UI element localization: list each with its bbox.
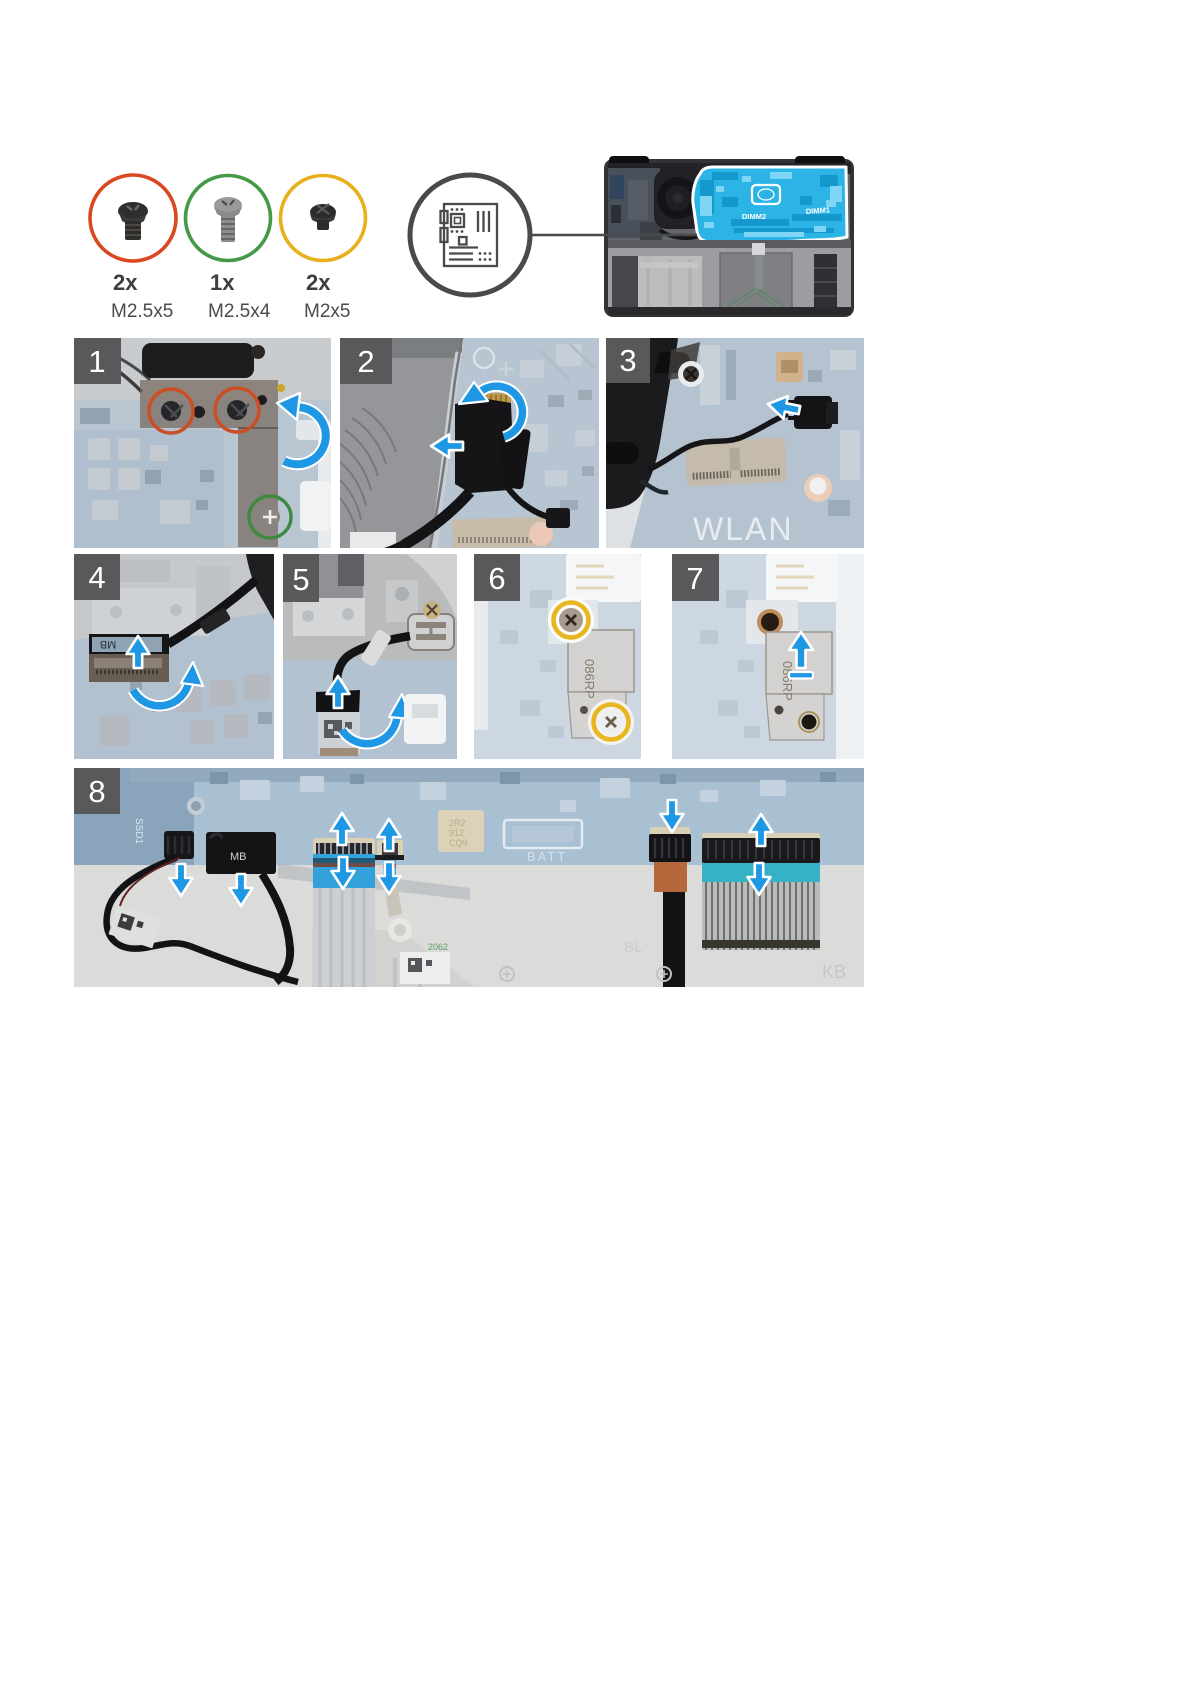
svg-text:7: 7 [686,561,703,596]
svg-text:WLAN: WLAN [693,511,793,547]
svg-text:2R2: 2R2 [449,818,466,828]
svg-text:BL: BL [624,939,642,956]
svg-text:086RP: 086RP [780,661,795,701]
svg-text:KB: KB [822,962,846,982]
svg-text:912: 912 [449,828,464,838]
svg-text:2x: 2x [113,270,138,295]
svg-text:2x: 2x [306,270,331,295]
svg-text:BATT: BATT [527,849,567,864]
svg-text:SSD1: SSD1 [133,818,144,845]
svg-text:MB: MB [100,638,117,650]
svg-text:2: 2 [357,344,374,379]
svg-text:CQ9: CQ9 [449,838,468,848]
svg-text:3: 3 [619,343,636,378]
svg-text:1: 1 [88,344,105,379]
svg-text:DIMM1: DIMM1 [806,205,831,216]
svg-text:1x: 1x [210,270,235,295]
svg-text:DIMM2: DIMM2 [742,212,766,221]
svg-text:2062: 2062 [428,942,448,952]
svg-text:5: 5 [292,562,309,597]
svg-text:M2.5x5: M2.5x5 [111,301,173,322]
svg-text:M2.5x4: M2.5x4 [208,301,271,322]
svg-text:4: 4 [88,560,105,595]
svg-text:M2x5: M2x5 [304,301,350,322]
svg-text:8: 8 [88,774,105,809]
svg-text:6: 6 [488,561,505,596]
svg-text:MB: MB [230,851,247,863]
svg-text:086RP: 086RP [582,659,597,699]
